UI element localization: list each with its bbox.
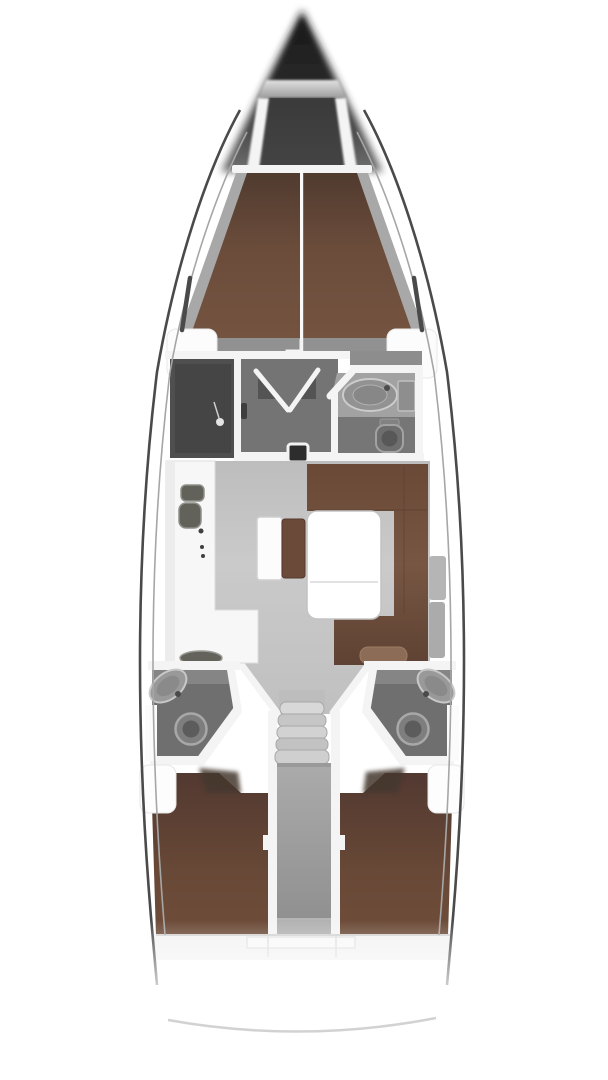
yacht-floor-plan [0,0,608,1080]
dressing-bulkhead [165,351,350,359]
floor-plan-canvas [0,0,608,1080]
hull-locker-stbd [428,765,464,813]
forward-dressing-area [238,359,338,462]
head-aft-wall [150,756,203,765]
head-inner-wall [331,390,338,461]
corridor-wall-stbd [331,711,340,941]
head-fwd-wall [148,661,240,670]
stove-knob-icon [201,554,205,558]
toilet-bowl [183,721,200,738]
aft-cabins [140,764,464,938]
step [280,702,324,715]
shower-floor [175,364,231,453]
step [277,726,327,739]
deck-locker-stbd [429,556,446,600]
toilet-bowl [382,431,398,447]
galley-sink-1 [181,485,204,501]
galley-faucet-icon [199,529,204,534]
faucet-icon [384,385,390,391]
mattress-center-seam [300,170,303,352]
head-aft-wall [401,756,454,765]
salon-chest-seat [257,517,282,580]
vanity-cabinet [398,381,415,411]
sink-bowl [353,385,387,405]
head-aft-wall [332,453,424,462]
mast-post [288,444,308,462]
stern-fade [100,920,508,1080]
step [278,714,326,727]
salon-bench-seat [282,519,305,578]
toilet-bowl [405,721,422,738]
stove-knob-icon [200,545,204,549]
wall-notch-stbd [334,835,345,850]
faucet-icon [423,691,429,697]
wall-notch-port [263,835,274,850]
deck-locker-stbd [429,602,445,658]
windlass-hatch [257,80,347,98]
step [276,738,328,751]
locker-interior [258,98,346,168]
wall-fitting [241,403,247,419]
galley-hull-shade [166,461,175,663]
faucet-icon [175,691,181,697]
shower-head-icon [216,418,224,426]
step-shadow [277,763,331,767]
engine-compartment-corridor [277,764,331,938]
head-outer-wall [415,365,423,464]
mid-section [165,340,424,464]
shower-wall [234,355,241,461]
step [275,750,329,764]
head-fwd-wall [350,365,422,373]
head-fwd-wall [364,661,456,670]
salon-table [307,511,381,619]
head-shelf [350,351,422,367]
port-shower-room [170,355,241,461]
hull-locker-port [140,765,176,813]
galley-sink-2 [179,503,201,528]
